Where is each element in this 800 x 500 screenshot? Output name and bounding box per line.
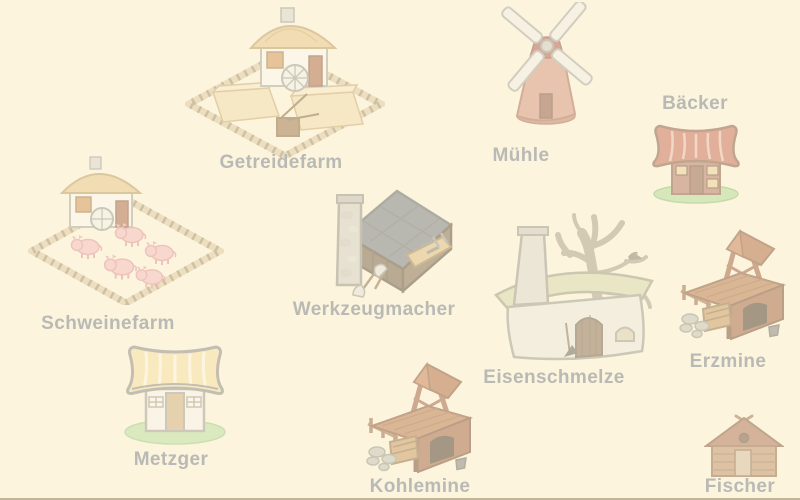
toolmaker-icon bbox=[323, 185, 455, 299]
ore-mine-icon bbox=[673, 229, 793, 345]
label-metzger: Metzger bbox=[134, 449, 209, 471]
label-erzmine: Erzmine bbox=[690, 351, 767, 373]
windmill-icon bbox=[487, 2, 599, 130]
production-buildings-overview: Getreidefarm Mühle bbox=[0, 0, 800, 500]
building-getreidefarm[interactable]: Getreidefarm bbox=[185, 2, 385, 158]
label-eisenschmelze: Eisenschmelze bbox=[483, 367, 624, 389]
building-fischer[interactable]: Fischer bbox=[704, 414, 784, 480]
label-schweinefarm: Schweinefarm bbox=[41, 313, 175, 335]
iron-smelter-icon bbox=[482, 207, 660, 365]
label-fischer: Fischer bbox=[705, 476, 775, 498]
building-baecker[interactable]: Bäcker bbox=[650, 112, 742, 204]
building-eisenschmelze[interactable]: Eisenschmelze bbox=[482, 207, 660, 365]
building-werkzeugmacher[interactable]: Werkzeugmacher bbox=[323, 185, 455, 299]
label-baecker: Bäcker bbox=[662, 93, 728, 115]
building-metzger[interactable]: Metzger bbox=[118, 337, 232, 447]
building-muehle[interactable]: Mühle bbox=[487, 2, 599, 130]
coal-mine-icon bbox=[364, 362, 476, 478]
building-schweinefarm[interactable]: Schweinefarm bbox=[28, 155, 224, 305]
butcher-shop-icon bbox=[118, 337, 232, 447]
fishing-hut-icon bbox=[704, 414, 784, 480]
bakery-icon bbox=[650, 112, 742, 204]
pig-farm-icon bbox=[28, 155, 224, 305]
label-kohlemine: Kohlemine bbox=[370, 476, 471, 498]
building-erzmine[interactable]: Erzmine bbox=[673, 229, 793, 345]
building-kohlemine[interactable]: Kohlemine bbox=[364, 362, 476, 478]
grain-farm-icon bbox=[185, 2, 385, 158]
label-muehle: Mühle bbox=[493, 145, 550, 167]
label-werkzeugmacher: Werkzeugmacher bbox=[293, 299, 456, 321]
label-getreidefarm: Getreidefarm bbox=[219, 152, 342, 174]
